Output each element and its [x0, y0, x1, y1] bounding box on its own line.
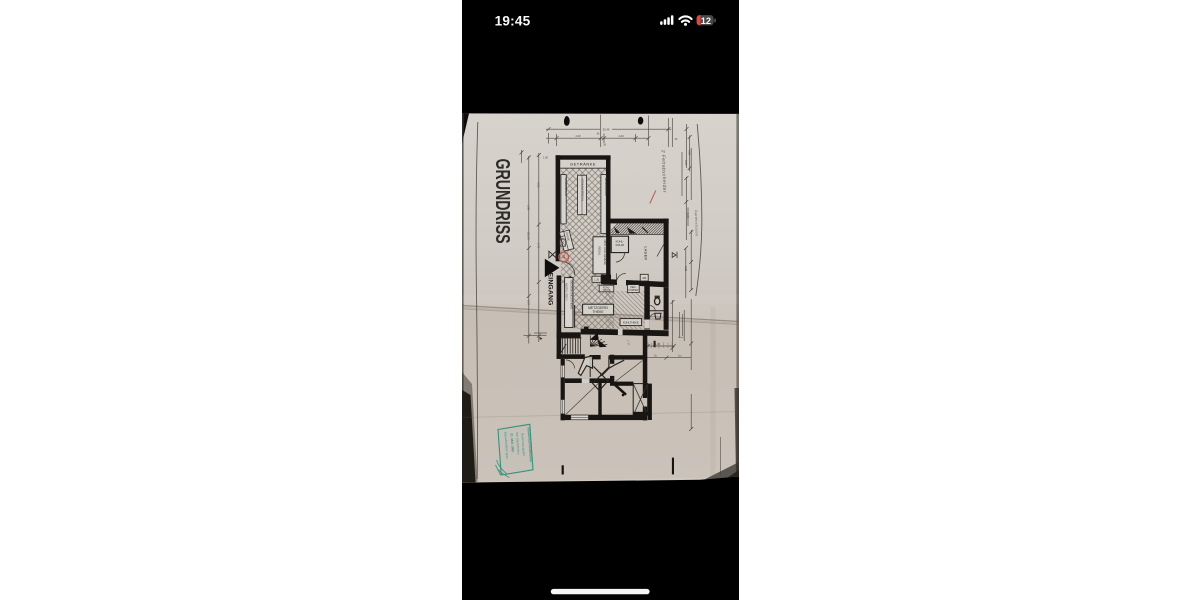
svg-text:THEKE: THEKE — [592, 310, 604, 314]
svg-text:WANDREGAL: WANDREGAL — [564, 178, 568, 197]
svg-text:4.18: 4.18 — [684, 160, 687, 165]
svg-text:5.38: 5.38 — [527, 205, 531, 211]
svg-text:1.38: 1.38 — [655, 343, 660, 346]
svg-text:BEDIENUNGSTHEKE: BEDIENUNGSTHEKE — [570, 281, 574, 310]
svg-text:5.01: 5.01 — [537, 182, 541, 188]
svg-text:KÖRPER: KÖRPER — [628, 289, 638, 292]
svg-text:4.40: 4.40 — [618, 134, 624, 138]
svg-text:WB: WB — [642, 277, 646, 280]
svg-text:REGAL: REGAL — [598, 247, 602, 256]
svg-text:VERKAUFSREGAL: VERKAUFSREGAL — [580, 179, 584, 202]
svg-text:GETRÄNKE: GETRÄNKE — [570, 162, 596, 167]
svg-text:3.25: 3.25 — [684, 266, 687, 271]
svg-text:9.87: 9.87 — [527, 300, 531, 306]
svg-text:1.01: 1.01 — [686, 213, 689, 218]
svg-text:4.95: 4.95 — [688, 150, 691, 155]
svg-text:GRUNDRISS: GRUNDRISS — [491, 159, 514, 244]
svg-text:WANDREGAL: WANDREGAL — [604, 178, 608, 197]
svg-text:EINGANG: EINGANG — [547, 273, 554, 306]
svg-text:19:45: 19:45 — [495, 13, 531, 28]
svg-text:35.49: 35.49 — [603, 127, 610, 131]
svg-text:4: 4 — [562, 255, 565, 261]
svg-text:LAGER: LAGER — [643, 247, 647, 261]
svg-text:KÜHLTHEKE: KÜHLTHEKE — [623, 320, 639, 324]
svg-text:1m: 1m — [678, 355, 681, 358]
svg-text:1.78: 1.78 — [537, 243, 541, 249]
svg-text:23.36: 23.36 — [527, 232, 531, 240]
svg-text:TRUHE: TRUHE — [602, 289, 611, 292]
svg-text:12: 12 — [701, 16, 711, 27]
svg-text:ABSTELLTISCH: ABSTELLTISCH — [565, 283, 568, 301]
svg-text:RAUM: RAUM — [616, 243, 625, 247]
svg-text:1.50: 1.50 — [543, 156, 549, 160]
svg-text:OBST UND GEMÜSE: OBST UND GEMÜSE — [603, 240, 607, 266]
svg-text:1.35: 1.35 — [594, 278, 599, 281]
svg-text:4.40: 4.40 — [575, 134, 581, 138]
